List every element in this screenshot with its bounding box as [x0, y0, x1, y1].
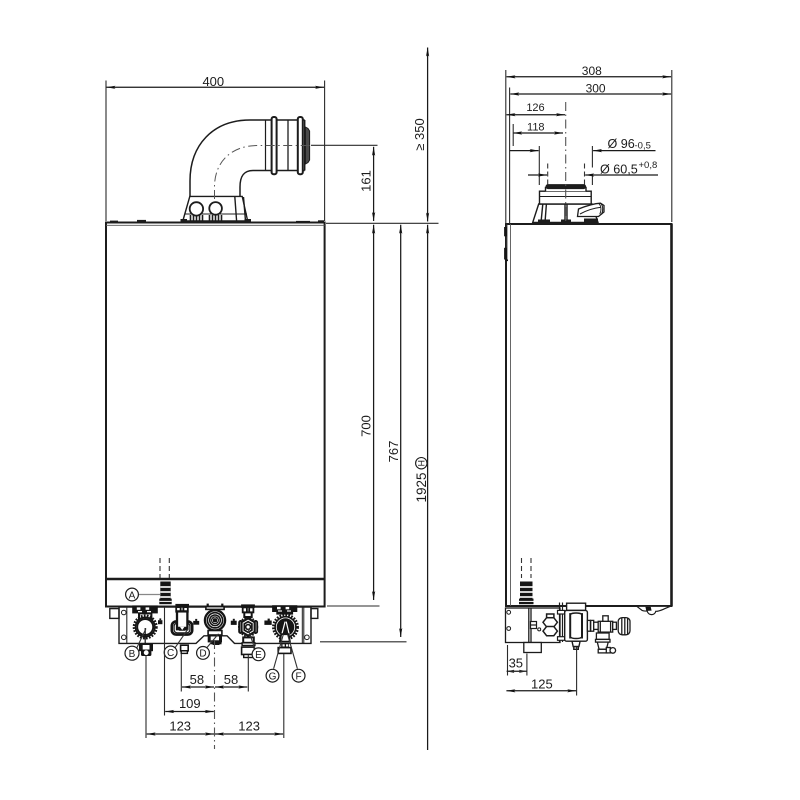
svg-text:B: B	[129, 649, 136, 660]
svg-text:Ø 96: Ø 96	[608, 137, 635, 151]
svg-text:1925: 1925	[414, 472, 429, 502]
svg-text:H: H	[416, 460, 426, 466]
svg-text:125: 125	[531, 676, 553, 691]
svg-text:300: 300	[586, 81, 606, 95]
svg-text:58: 58	[190, 672, 204, 687]
svg-text:126: 126	[526, 102, 544, 114]
svg-text:700: 700	[359, 415, 374, 437]
svg-text:109: 109	[179, 696, 201, 711]
svg-text:123: 123	[169, 719, 191, 734]
svg-text:118: 118	[527, 122, 545, 134]
svg-text:308: 308	[582, 64, 602, 78]
svg-text:G: G	[269, 672, 277, 683]
svg-text:A: A	[129, 590, 136, 601]
svg-text:161: 161	[358, 170, 373, 192]
svg-text:C: C	[167, 648, 174, 659]
svg-text:E: E	[255, 650, 262, 661]
svg-text:767: 767	[386, 441, 401, 463]
svg-text:Ø 60,5: Ø 60,5	[600, 163, 638, 177]
svg-text:58: 58	[224, 672, 238, 687]
svg-text:400: 400	[202, 74, 224, 89]
svg-text:123: 123	[238, 719, 260, 734]
svg-text:35: 35	[509, 656, 523, 671]
svg-text:D: D	[199, 649, 206, 660]
svg-text:F: F	[296, 672, 302, 683]
svg-text:≥ 350: ≥ 350	[412, 118, 427, 150]
svg-text:-0,5: -0,5	[635, 140, 651, 151]
svg-text:+0,8: +0,8	[639, 160, 658, 171]
